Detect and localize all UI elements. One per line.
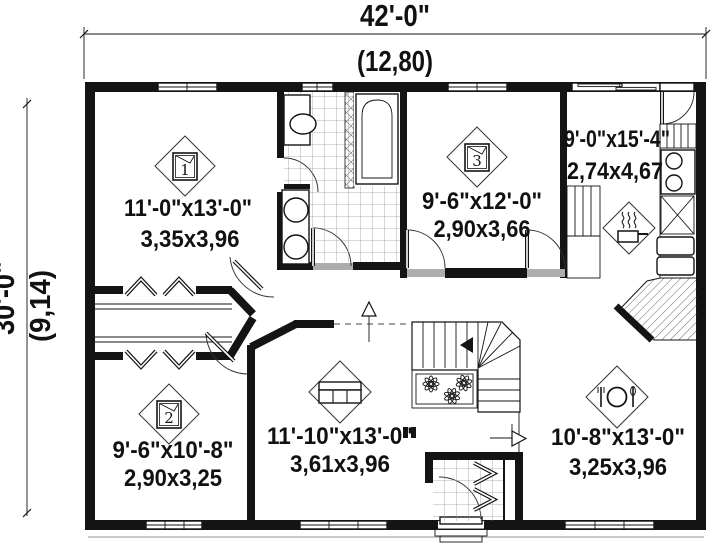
bedroom1-size-imperial: 11'-0"x13'-0" [124,195,252,222]
peninsula-counter-icon [616,278,697,340]
window-dining-icon [565,521,654,529]
kitchen-size-metric: 2,74x4,67 [567,158,663,185]
overall-width-imperial: 42'-0" [360,0,430,33]
room-bedroom2: 2 9'-6"x10'-8" 2,90x3,25 [113,384,234,492]
bed-icon: 3 [447,127,507,187]
dining-icon [586,366,648,428]
dining-size-imperial: 10'-8"x13'-0" [551,424,685,451]
kitchen-size-imperial: 9'-0"x15'-4" [564,126,670,153]
room-living: 11'-10"x13'-0" 3,61x3,96 [267,361,413,478]
window-bath-icon [302,83,333,91]
room-bedroom1: 1 11'-0"x13'-0" 3,35x3,96 [124,136,252,253]
closet-bifold-doors [126,279,194,367]
bath-partition [284,184,310,189]
window-bedroom1-icon [158,83,217,91]
bed-icon: 1 [155,136,215,196]
dimension-top: 42'-0" (12,80) [80,0,710,79]
dimension-left: 30'-0" (9,14) [0,98,57,517]
window-living-icon [300,521,387,529]
bedroom3-size-imperial: 9'-6"x12'-0" [422,188,542,215]
bifold-icon [126,279,156,295]
dining-size-metric: 3,25x3,96 [569,454,667,481]
bedroom1-size-metric: 3,35x3,96 [141,226,240,253]
entry-arrow-icon [490,424,526,446]
up-arrow-icon [362,302,376,342]
room-kitchen: 9'-0"x15'-4" 2,74x4,67 [564,126,670,254]
svg-text:3: 3 [472,152,482,170]
stair-direction-arrow-icon [460,337,473,353]
bed-icon: 2 [139,384,199,444]
overall-height-imperial: 30'-0" [0,261,21,335]
room-dining: 10'-8"x13'-0" 3,25x3,96 [551,366,685,481]
window-bedroom2-icon [146,521,202,529]
kitchen-hall-door-icon [527,230,565,277]
bathtub-icon [354,92,400,186]
bathroom [282,92,400,264]
entry-vestibule [425,424,526,521]
living-size-metric: 3,61x3,96 [290,451,390,478]
bedroom3-size-metric: 2,90x3,66 [434,216,531,243]
bedroom2-size-imperial: 9'-6"x10'-8" [113,437,234,464]
cooking-icon [603,202,655,254]
svg-text:2: 2 [164,409,174,427]
fridge-icon [661,196,694,234]
sofa-icon [309,361,371,423]
bedroom1-door-icon [230,257,274,297]
toilet-icon [282,190,309,264]
stove-icon [661,150,695,194]
bifold-icon [164,351,194,367]
living-size-imperial: 11'-10"x13'-0" [267,423,413,450]
patio-slider-icon [572,83,660,91]
kitchen-sink-icon [657,237,694,275]
window-bedroom3-icon [448,83,507,91]
planter [412,370,477,408]
bedroom2-size-metric: 2,90x3,25 [124,465,222,492]
pantry-icon [567,186,600,278]
bifold-icon [164,279,194,295]
room-bedroom3: 3 9'-6"x12'-0" 2,90x3,66 [422,127,542,243]
bifold-icon [126,351,156,367]
kitchen-rear-door-icon [660,83,694,124]
overall-height-metric: (9,14) [25,270,57,342]
svg-text:1: 1 [180,161,190,179]
floor-plan-canvas: 42'-0" (12,80) 30'-0" (9,14) [0,0,720,543]
overall-width-metric: (12,80) [357,46,433,78]
